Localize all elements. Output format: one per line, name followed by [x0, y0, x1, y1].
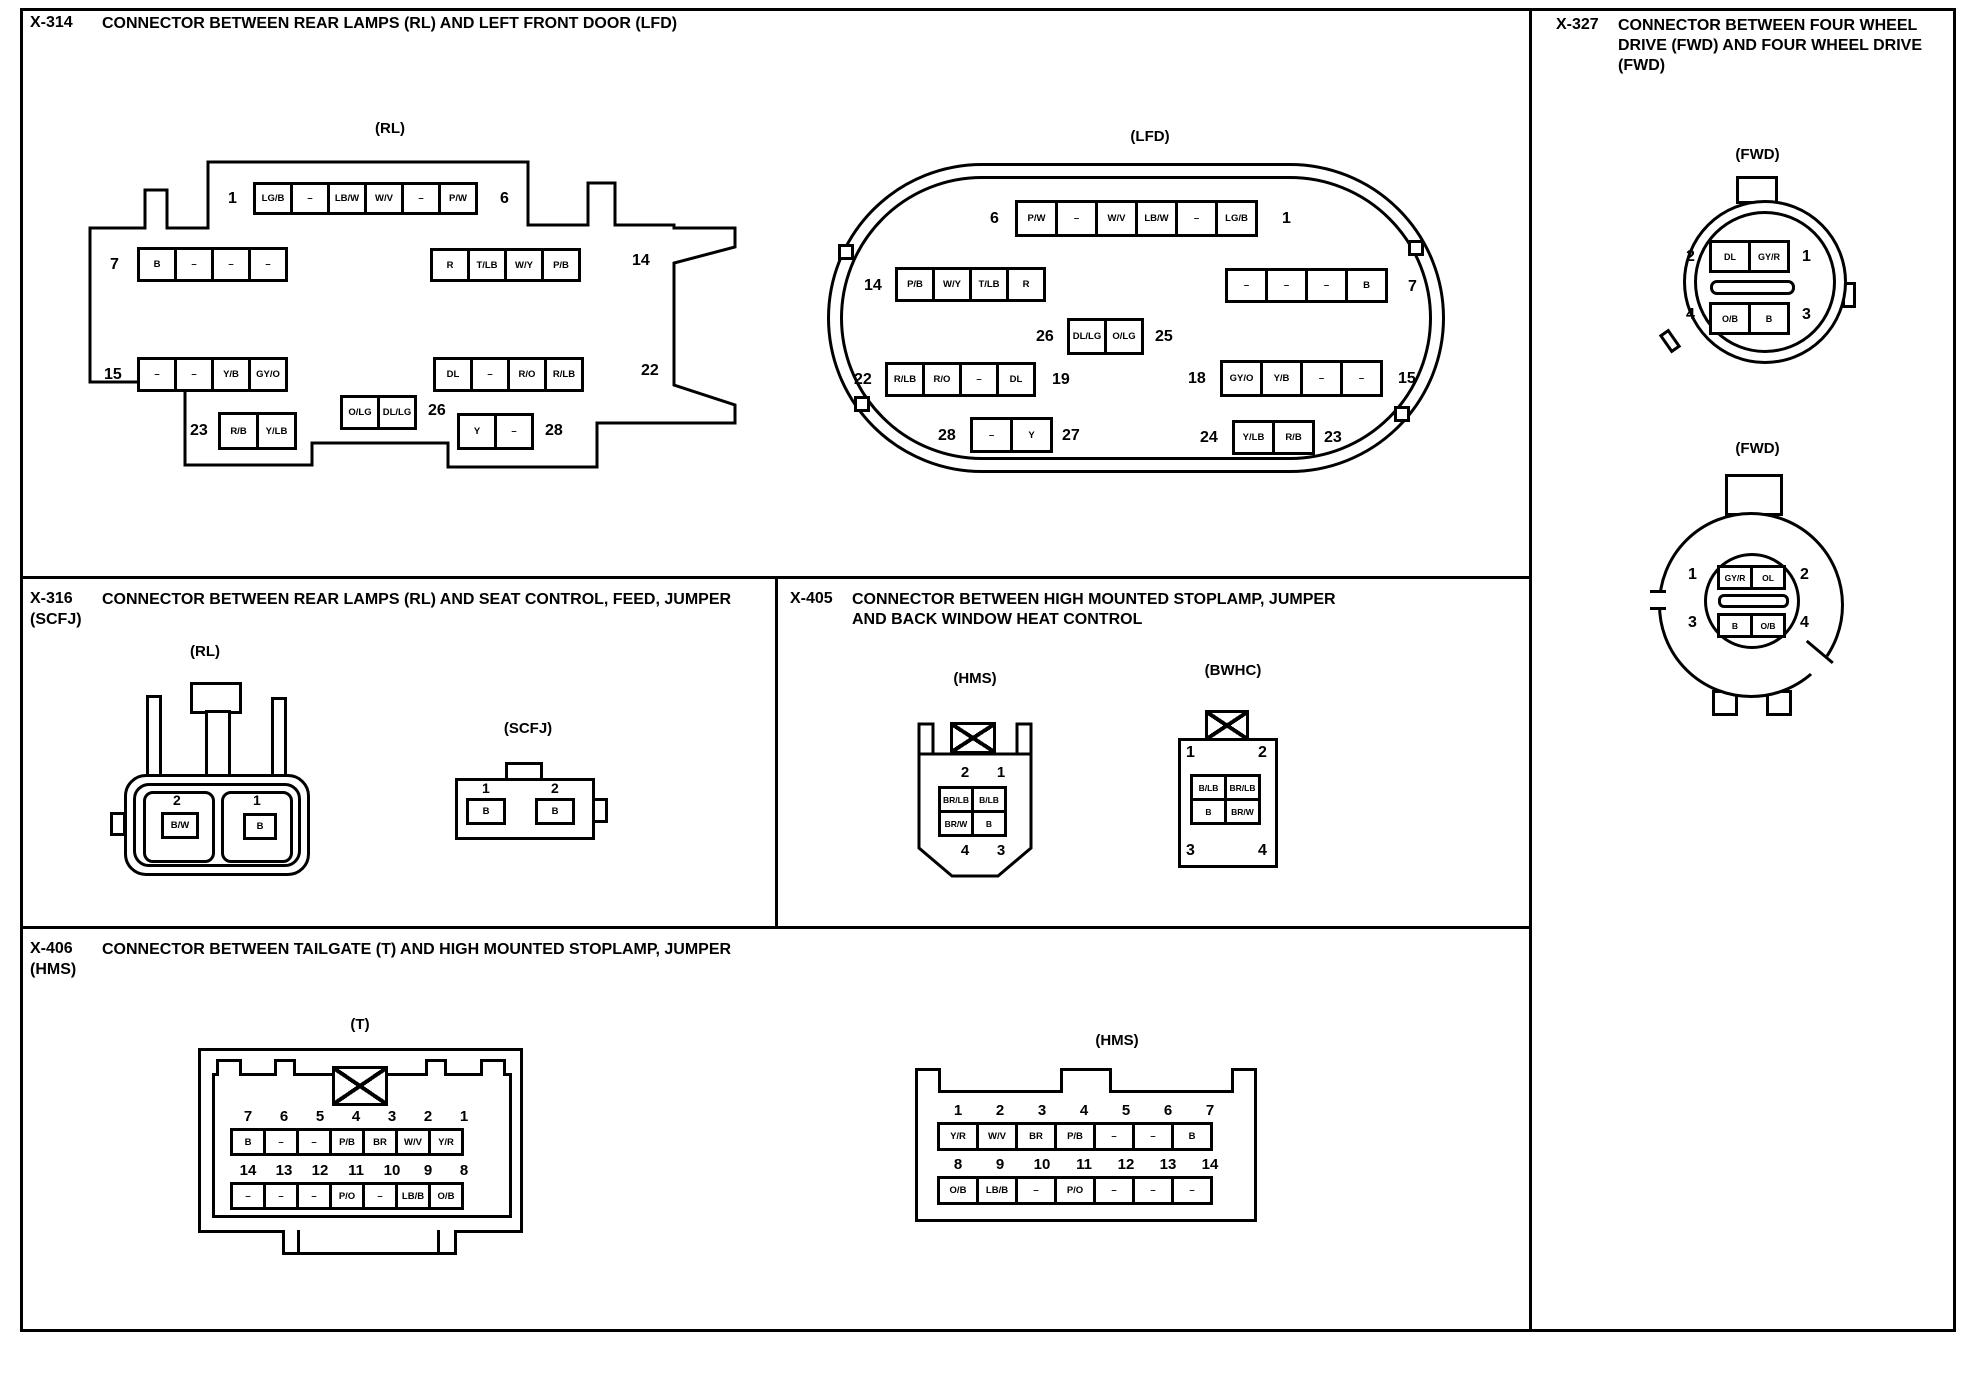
- x327-top-row2-right-num: 3: [1802, 306, 1811, 324]
- x316-scfj-pin1-cell: B: [466, 798, 506, 825]
- pin-number: 1: [937, 1102, 979, 1119]
- pin-cell: LB/B: [976, 1176, 1018, 1205]
- pin-cell: –: [1340, 360, 1383, 397]
- x327-top-row2-cells: O/BB: [1709, 302, 1787, 332]
- pin-cell: R/LB: [544, 357, 584, 392]
- x314-lfd-row1-left-num: 6: [990, 210, 999, 228]
- pin-cell: –: [494, 413, 534, 450]
- pin-cell: R/B: [1272, 420, 1315, 455]
- pin-cell: R: [430, 248, 470, 282]
- x314-rl-row2r-num: 14: [632, 252, 650, 270]
- pin-cell: P/B: [541, 248, 581, 282]
- pin-cell: DL: [433, 357, 473, 392]
- pin-cell: P/O: [329, 1182, 365, 1210]
- pin-cell: T/LB: [467, 248, 507, 282]
- pin-number: 1: [983, 764, 1019, 781]
- x314-rl-row1-right-num: 6: [500, 190, 509, 208]
- x314-code: X-314: [30, 14, 73, 32]
- pin-cell: –: [470, 357, 510, 392]
- pin-cell: B: [1717, 613, 1753, 638]
- x405-bwhc-grid: B/LBBR/LBBBR/W: [1190, 774, 1264, 822]
- x406-t-castellation: [425, 1059, 447, 1076]
- x314-lfd-row4r-right-num: 23: [1324, 429, 1342, 447]
- pin-cell: O/B: [428, 1182, 464, 1210]
- pin-cell: –: [296, 1128, 332, 1156]
- x405-hms-top-nums: 21: [947, 764, 1019, 781]
- x327-top-row1-cells: DLGY/R: [1709, 240, 1787, 270]
- x327-bottom-row1-cells: GY/ROL: [1717, 565, 1783, 587]
- pin-cell: Y: [1010, 417, 1053, 453]
- x327-top-row2-left-num: 4: [1686, 306, 1695, 324]
- x316-rl-prong: [146, 695, 162, 779]
- pin-number: 8: [446, 1162, 482, 1179]
- pin-cell: DL/LG: [1067, 318, 1107, 355]
- pin-cell: –: [290, 182, 330, 215]
- x406-title: CONNECTOR BETWEEN TAILGATE (T) AND HIGH …: [102, 940, 802, 960]
- x314-lfd-row4l-left-num: 28: [938, 427, 956, 445]
- x406-t-label: (T): [330, 1016, 390, 1033]
- x406-t-castellation: [274, 1059, 296, 1076]
- pin-cell: O/B: [937, 1176, 979, 1205]
- x327-bottom-left-notch: [1650, 590, 1666, 610]
- pin-cell: B: [1748, 302, 1790, 335]
- pin-cell: LG/B: [253, 182, 293, 215]
- pin-number: 6: [1147, 1102, 1189, 1119]
- pin-number: 5: [302, 1108, 338, 1125]
- pin-cell: Y: [457, 413, 497, 450]
- x327-bottom-row2-left-num: 3: [1688, 614, 1697, 632]
- x314-rl-row1-cells: LG/B–LB/WW/V–P/W: [253, 182, 475, 212]
- x314-lfd-row1-right-num: 1: [1282, 210, 1291, 228]
- x314-rl-row3r-cells: DL–R/OR/LB: [433, 357, 581, 389]
- lfd-index-key: [838, 244, 854, 260]
- pin-cell: –: [1093, 1176, 1135, 1205]
- pin-cell: P/W: [1015, 200, 1058, 237]
- x314-lfd-rowc-right-num: 25: [1155, 328, 1173, 346]
- x316-scfj-pin2-cell: B: [535, 798, 575, 825]
- x314-lfd-row3l-right-num: 19: [1052, 371, 1070, 389]
- x406-hms-cells-row2: O/BLB/B–P/O–––: [937, 1176, 1210, 1202]
- pin-number: 3: [374, 1108, 410, 1125]
- pin-cell: LB/B: [395, 1182, 431, 1210]
- x316-rl-pin2-num: 1: [253, 792, 261, 808]
- x406-hms-nums-row1: 1234567: [937, 1102, 1231, 1119]
- x327-top-label: (FWD): [1700, 146, 1815, 163]
- pin-cell: GY/R: [1748, 240, 1790, 273]
- pin-cell: B: [1345, 268, 1388, 303]
- pin-number: 4: [1063, 1102, 1105, 1119]
- x406-t-nums-row1: 7654321: [230, 1108, 482, 1125]
- pin-number: 8: [937, 1156, 979, 1173]
- pin-cell: –: [174, 357, 214, 392]
- x405-bwhc-num-tr: 2: [1258, 744, 1267, 762]
- pin-cell: T/LB: [969, 267, 1009, 302]
- x406-t-cells-row2: –––P/O–LB/BO/B: [230, 1182, 461, 1207]
- pin-cell: –: [1055, 200, 1098, 237]
- pin-number: 13: [266, 1162, 302, 1179]
- pin-number: 2: [947, 764, 983, 781]
- x327-top-row1-left-num: 2: [1686, 248, 1695, 266]
- x314-lfd-row3l-left-num: 22: [854, 371, 872, 389]
- x314-rl-row4l-cells: R/BY/LB: [218, 412, 294, 447]
- pin-cell: –: [970, 417, 1013, 453]
- x406-hms-nums-row2: 891011121314: [937, 1156, 1231, 1173]
- pin-number: 5: [1105, 1102, 1147, 1119]
- pin-cell: –: [1225, 268, 1268, 303]
- pin-cell: DL: [1709, 240, 1751, 273]
- x405-bwhc-num-br: 4: [1258, 842, 1267, 860]
- x316-rl-prong: [271, 697, 287, 779]
- pin-number: 1: [446, 1108, 482, 1125]
- pin-cell: –: [362, 1182, 398, 1210]
- x406-t-lock-icon: [332, 1066, 388, 1106]
- pin-cell: W/V: [364, 182, 404, 215]
- x314-lfd-row4l-cells: –Y: [970, 417, 1050, 450]
- x314-lfd-row4l-right-num: 27: [1062, 427, 1080, 445]
- x406-t-castellation: [480, 1059, 506, 1076]
- pin-cell: –: [401, 182, 441, 215]
- x405-bwhc-lock-icon: [1205, 710, 1249, 741]
- pin-cell: –: [959, 362, 999, 397]
- pin-cell: –: [230, 1182, 266, 1210]
- pin-number: 9: [410, 1162, 446, 1179]
- x314-lfd-row4r-left-num: 24: [1200, 429, 1218, 447]
- x314-lfd-row2l-num: 14: [864, 277, 882, 295]
- pin-cell: OL: [1750, 565, 1786, 590]
- pin-number: 11: [338, 1162, 374, 1179]
- x405-bwhc-label: (BWHC): [1178, 662, 1288, 679]
- x327-bottom-blank-slot: [1718, 594, 1789, 608]
- pin-number: 13: [1147, 1156, 1189, 1173]
- x314-rl-row3l-cells: ––Y/BGY/O: [137, 357, 285, 389]
- pin-cell: LB/W: [1135, 200, 1178, 237]
- pin-cell: Y/LB: [256, 412, 297, 450]
- x406-hms-label: (HMS): [1072, 1032, 1162, 1049]
- x316-rl-prong: [205, 710, 231, 778]
- pin-cell: –: [137, 357, 177, 392]
- lfd-index-key: [1408, 240, 1424, 256]
- x406-code: X-406: [30, 940, 73, 958]
- x406-t-nums-row2: 141312111098: [230, 1162, 482, 1179]
- pin-number: 6: [266, 1108, 302, 1125]
- lfd-index-key: [854, 396, 870, 412]
- pin-number: 2: [410, 1108, 446, 1125]
- pin-cell: O/LG: [1104, 318, 1144, 355]
- x406-hms-cells-row1: Y/RW/VBRP/B––B: [937, 1122, 1210, 1148]
- x327-bottom-row1-right-num: 2: [1800, 566, 1809, 584]
- pin-cell: P/B: [895, 267, 935, 302]
- pin-cell: GY/O: [248, 357, 288, 392]
- pin-cell: BR: [362, 1128, 398, 1156]
- pin-cell: BR/LB: [1224, 774, 1261, 801]
- pin-cell: W/Y: [932, 267, 972, 302]
- pin-cell: –: [296, 1182, 332, 1210]
- pin-cell: Y/R: [937, 1122, 979, 1151]
- pin-number: 7: [1189, 1102, 1231, 1119]
- x405-title: CONNECTOR BETWEEN HIGH MOUNTED STOPLAMP,…: [852, 590, 1492, 630]
- pin-number: 14: [230, 1162, 266, 1179]
- x314-lfd-row3r-cells: GY/OY/B––: [1220, 360, 1380, 394]
- pin-cell: B: [137, 247, 177, 282]
- x405-code: X-405: [790, 590, 833, 608]
- pin-cell: –: [1305, 268, 1348, 303]
- pin-cell: GY/R: [1717, 565, 1753, 590]
- pin-cell: BR: [1015, 1122, 1057, 1151]
- x327-bottom-row2-right-num: 4: [1800, 614, 1809, 632]
- x314-lfd-row2r-num: 7: [1408, 278, 1417, 296]
- pin-cell: –: [263, 1128, 299, 1156]
- x405-hms-label: (HMS): [920, 670, 1030, 687]
- x314-rl-label: (RL): [340, 120, 440, 137]
- pin-cell: –: [1015, 1176, 1057, 1205]
- x405-bwhc-num-bl: 3: [1186, 842, 1195, 860]
- x316-scfj-pin2-num: 2: [551, 780, 559, 796]
- pin-cell: –: [1300, 360, 1343, 397]
- x327-top-row1-right-num: 1: [1802, 248, 1811, 266]
- pin-cell: R/LB: [885, 362, 925, 397]
- x314-title: CONNECTOR BETWEEN REAR LAMPS (RL) AND LE…: [102, 14, 1202, 34]
- x314-rl-row3l-num: 15: [104, 366, 122, 384]
- pin-cell: GY/O: [1220, 360, 1263, 397]
- pin-cell: BR/W: [1224, 798, 1261, 825]
- pin-cell: DL/LG: [377, 395, 417, 430]
- x314-lfd-row3l-cells: R/LBR/O–DL: [885, 362, 1033, 394]
- pin-number: 2: [979, 1102, 1021, 1119]
- x314-lfd-row2l-cells: P/BW/YT/LBR: [895, 267, 1043, 299]
- x406-title2: (HMS): [30, 960, 76, 980]
- pin-number: 3: [983, 842, 1019, 859]
- pin-cell: R: [1006, 267, 1046, 302]
- x406-hms-castellation: [1231, 1068, 1257, 1093]
- x316-rl-label: (RL): [160, 643, 250, 660]
- x316-title2: (SCFJ): [30, 610, 82, 630]
- pin-cell: DL: [996, 362, 1036, 397]
- pin-cell: –: [1171, 1176, 1213, 1205]
- pin-cell: LB/W: [327, 182, 367, 215]
- pin-cell: W/V: [1095, 200, 1138, 237]
- pin-cell: B/LB: [971, 786, 1007, 813]
- x406-t-castellation: [216, 1059, 242, 1076]
- pin-cell: B/LB: [1190, 774, 1227, 801]
- pin-cell: –: [263, 1182, 299, 1210]
- pin-cell: W/V: [395, 1128, 431, 1156]
- x316-title: CONNECTOR BETWEEN REAR LAMPS (RL) AND SE…: [102, 590, 762, 610]
- x316-rl-pin1-num: 2: [173, 792, 181, 808]
- pin-number: 12: [1105, 1156, 1147, 1173]
- pin-cell: –: [1265, 268, 1308, 303]
- pin-cell: B: [1190, 798, 1227, 825]
- x314-lfd-rowc-left-num: 26: [1036, 328, 1054, 346]
- pin-cell: P/B: [1054, 1122, 1096, 1151]
- x327-title: CONNECTOR BETWEEN FOUR WHEEL DRIVE (FWD)…: [1618, 16, 1948, 76]
- x405-hms-grid: BR/LBB/LBBR/WB: [938, 786, 1010, 834]
- pin-number: 4: [947, 842, 983, 859]
- x316-code: X-316: [30, 590, 73, 608]
- pin-cell: R/O: [922, 362, 962, 397]
- pin-cell: R/B: [218, 412, 259, 450]
- pin-cell: BR/W: [938, 810, 974, 837]
- x314-rl-row4c-cells: O/LGDL/LG: [340, 395, 414, 427]
- pin-cell: –: [174, 247, 214, 282]
- pin-cell: W/Y: [504, 248, 544, 282]
- pin-cell: –: [1093, 1122, 1135, 1151]
- x314-rl-row4r-num: 28: [545, 422, 563, 440]
- pin-cell: Y/B: [211, 357, 251, 392]
- divider-v-mid: [775, 576, 778, 929]
- x406-t-bottom-tab-inner: [297, 1230, 440, 1255]
- pin-number: 9: [979, 1156, 1021, 1173]
- x314-rl-row4c-num: 26: [428, 402, 446, 420]
- x405-hms-bottom-nums: 43: [947, 842, 1019, 859]
- x327-bottom-row2-cells: BO/B: [1717, 613, 1783, 635]
- x316-rl-pin1-cell: B/W: [161, 812, 199, 839]
- pin-cell: O/B: [1709, 302, 1751, 335]
- pin-number: 10: [374, 1162, 410, 1179]
- pin-cell: B: [230, 1128, 266, 1156]
- pin-number: 11: [1063, 1156, 1105, 1173]
- pin-cell: Y/B: [1260, 360, 1303, 397]
- pin-cell: O/LG: [340, 395, 380, 430]
- pin-cell: B: [971, 810, 1007, 837]
- x327-code: X-327: [1556, 16, 1599, 34]
- x316-rl-pin2-cell: B: [243, 813, 277, 840]
- pin-cell: –: [1132, 1122, 1174, 1151]
- pin-cell: Y/LB: [1232, 420, 1275, 455]
- x314-rl-row4r-cells: Y–: [457, 413, 531, 447]
- x314-lfd-row1-cells: P/W–W/VLB/W–LG/B: [1015, 200, 1255, 234]
- x314-rl-row1-left-num: 1: [228, 190, 237, 208]
- x316-scfj-pin1-num: 1: [482, 780, 490, 796]
- x316-scfj-label: (SCFJ): [478, 720, 578, 737]
- x314-rl-row2l-num: 7: [110, 256, 119, 274]
- x314-rl-row3r-num: 22: [641, 362, 659, 380]
- pin-number: 4: [338, 1108, 374, 1125]
- x406-hms-castellation: [1060, 1068, 1112, 1093]
- x314-rl-row4l-num: 23: [190, 422, 208, 440]
- x314-lfd-row3r-right-num: 15: [1398, 370, 1416, 388]
- x314-lfd-row4r-cells: Y/LBR/B: [1232, 420, 1312, 452]
- pin-cell: O/B: [1750, 613, 1786, 638]
- x327-bottom-label: (FWD): [1700, 440, 1815, 457]
- pin-cell: –: [248, 247, 288, 282]
- pin-cell: LG/B: [1215, 200, 1258, 237]
- x314-lfd-label: (LFD): [1090, 128, 1210, 145]
- x327-top-blank-slot: [1710, 280, 1795, 295]
- pin-cell: R/O: [507, 357, 547, 392]
- pin-cell: –: [211, 247, 251, 282]
- x405-bwhc-num-tl: 1: [1186, 744, 1195, 762]
- x314-rl-row2l-cells: B–––: [137, 247, 285, 279]
- pin-number: 7: [230, 1108, 266, 1125]
- lfd-index-key: [1394, 406, 1410, 422]
- x406-t-cells-row1: B––P/BBRW/VY/R: [230, 1128, 461, 1153]
- pin-number: 10: [1021, 1156, 1063, 1173]
- divider-right-column: [1529, 8, 1532, 1332]
- pin-cell: W/V: [976, 1122, 1018, 1151]
- pin-cell: –: [1175, 200, 1218, 237]
- x314-lfd-row2r-cells: –––B: [1225, 268, 1385, 300]
- connector-pinout-page: X-314 CONNECTOR BETWEEN REAR LAMPS (RL) …: [0, 0, 1974, 1376]
- x406-hms-castellation: [915, 1068, 941, 1093]
- pin-cell: B: [1171, 1122, 1213, 1151]
- pin-cell: P/W: [438, 182, 478, 215]
- pin-number: 12: [302, 1162, 338, 1179]
- pin-cell: Y/R: [428, 1128, 464, 1156]
- pin-number: 14: [1189, 1156, 1231, 1173]
- pin-cell: –: [1132, 1176, 1174, 1205]
- x314-lfd-rowc-cells: DL/LGO/LG: [1067, 318, 1141, 352]
- pin-cell: P/O: [1054, 1176, 1096, 1205]
- x327-bottom-key-tab: [1725, 474, 1783, 516]
- pin-cell: P/B: [329, 1128, 365, 1156]
- pin-cell: BR/LB: [938, 786, 974, 813]
- x314-rl-row2r-cells: RT/LBW/YP/B: [430, 248, 578, 279]
- x314-lfd-row3r-left-num: 18: [1188, 370, 1206, 388]
- x327-bottom-row1-left-num: 1: [1688, 566, 1697, 584]
- pin-number: 3: [1021, 1102, 1063, 1119]
